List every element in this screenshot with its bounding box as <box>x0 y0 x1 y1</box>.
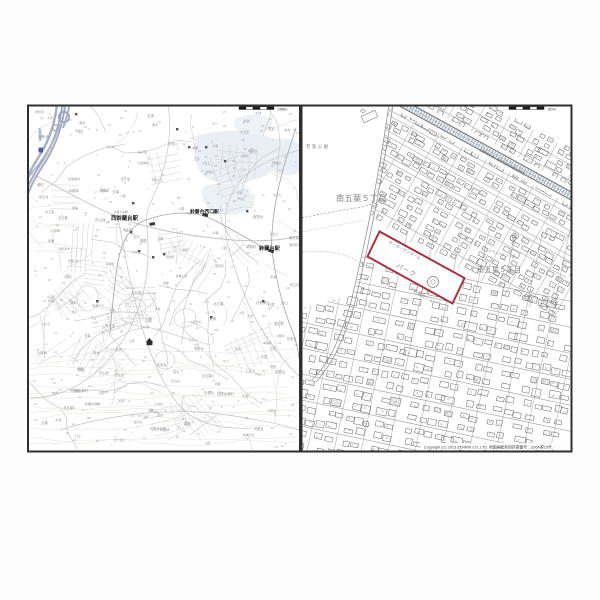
svg-text:鈴蘭: 鈴蘭 <box>213 231 219 235</box>
svg-text:北五葉3: 北五葉3 <box>131 290 143 295</box>
svg-text:白川台: 白川台 <box>42 322 50 326</box>
svg-text:唐櫃: 唐櫃 <box>184 421 191 426</box>
svg-text:小部峠: 小部峠 <box>160 427 170 432</box>
svg-text:桜の宮: 桜の宮 <box>134 420 143 424</box>
svg-text:中一: 中一 <box>177 195 183 200</box>
svg-text:鈴蘭台西口駅: 鈴蘭台西口駅 <box>190 208 219 215</box>
svg-text:杉尾神: 杉尾神 <box>155 402 163 406</box>
svg-text:大池: 大池 <box>55 417 61 422</box>
svg-text:高尾山: 高尾山 <box>189 338 197 342</box>
svg-text:幸陽: 幸陽 <box>72 205 78 210</box>
svg-text:緑町: 緑町 <box>37 182 44 187</box>
svg-text:杉尾神: 杉尾神 <box>69 188 79 193</box>
svg-text:五葉: 五葉 <box>157 236 164 241</box>
svg-text:会下: 会下 <box>72 310 78 314</box>
svg-text:大池: 大池 <box>255 110 261 115</box>
svg-text:甲栄: 甲栄 <box>155 307 161 311</box>
svg-text:西大池: 西大池 <box>39 134 49 139</box>
svg-text:鈴蘭公園: 鈴蘭公園 <box>176 274 187 278</box>
svg-text:鈴蘭台駅: 鈴蘭台駅 <box>259 244 281 252</box>
svg-text:泉台: 泉台 <box>93 350 100 355</box>
svg-text:水呑: 水呑 <box>68 258 74 263</box>
svg-text:花山台: 花山台 <box>171 378 180 383</box>
svg-text:友清: 友清 <box>147 113 154 118</box>
svg-text:山田: 山田 <box>270 345 276 350</box>
svg-text:大原: 大原 <box>129 339 135 343</box>
svg-text:小部峠: 小部峠 <box>240 154 249 158</box>
svg-text:5: 5 <box>512 237 514 241</box>
svg-text:北五葉: 北五葉 <box>213 301 224 306</box>
svg-text:大原: 大原 <box>132 249 138 254</box>
svg-text:鈴蘭台: 鈴蘭台 <box>106 262 115 266</box>
svg-text:北五葉: 北五葉 <box>58 215 68 220</box>
svg-text:小部: 小部 <box>221 245 227 250</box>
svg-text:南五葉５丁目: 南五葉５丁目 <box>336 193 387 203</box>
svg-text:ひよ: ひよ <box>75 433 81 438</box>
svg-text:緑町: 緑町 <box>183 247 189 252</box>
svg-text:君影: 君影 <box>268 126 275 131</box>
svg-text:西大池: 西大池 <box>107 145 115 149</box>
svg-text:松宮台: 松宮台 <box>157 362 167 367</box>
svg-text:菊水: 菊水 <box>235 346 241 351</box>
svg-text:君影町5: 君影町5 <box>289 242 300 247</box>
svg-text:上谷上: 上谷上 <box>280 300 289 305</box>
svg-text:五葉: 五葉 <box>84 333 91 338</box>
svg-text:西鈴蘭台駅: 西鈴蘭台駅 <box>111 214 139 222</box>
svg-text:高尾山: 高尾山 <box>275 369 286 374</box>
svg-text:菊水: 菊水 <box>109 307 115 312</box>
svg-text:妙賀山: 妙賀山 <box>168 141 178 146</box>
svg-text:若葉公園: 若葉公園 <box>306 143 330 150</box>
svg-text:杉尾神社: 杉尾神社 <box>68 176 80 181</box>
svg-text:君影町: 君影町 <box>193 320 202 324</box>
svg-text:西大池: 西大池 <box>105 323 116 328</box>
svg-text:幸陽町: 幸陽町 <box>263 340 272 345</box>
svg-text:北五葉3: 北五葉3 <box>63 405 75 410</box>
svg-text:北五葉: 北五葉 <box>240 129 249 134</box>
svg-text:杉尾: 杉尾 <box>261 354 267 359</box>
svg-text:鈴蘭: 鈴蘭 <box>74 388 80 393</box>
svg-text:君影町: 君影町 <box>35 109 44 114</box>
svg-text:白川: 白川 <box>154 410 160 414</box>
svg-text:五葉: 五葉 <box>112 189 119 194</box>
svg-text:友清: 友清 <box>133 234 140 239</box>
svg-text:花山台: 花山台 <box>273 193 281 197</box>
svg-text:小部: 小部 <box>242 393 249 398</box>
svg-text:君影: 君影 <box>270 364 277 369</box>
svg-text:大池: 大池 <box>247 313 253 318</box>
svg-text:有野台: 有野台 <box>253 214 264 219</box>
svg-text:桜の宮: 桜の宮 <box>138 149 147 154</box>
svg-text:50m: 50m <box>548 107 556 112</box>
svg-text:妙賀山: 妙賀山 <box>206 170 214 174</box>
svg-text:2: 2 <box>365 423 367 427</box>
svg-text:250m: 250m <box>278 107 289 112</box>
svg-text:友清: 友清 <box>115 347 122 352</box>
svg-text:西大: 西大 <box>173 369 179 374</box>
svg-text:水呑: 水呑 <box>48 298 55 303</box>
svg-text:五葉: 五葉 <box>194 157 200 161</box>
svg-text:唐櫃: 唐櫃 <box>163 281 169 285</box>
svg-text:花山台: 花山台 <box>99 370 110 375</box>
svg-text:から: から <box>223 358 229 363</box>
svg-text:山田: 山田 <box>205 441 211 445</box>
svg-text:杉尾神社: 杉尾神社 <box>138 160 150 165</box>
svg-text:北五葉3: 北五葉3 <box>202 373 214 378</box>
svg-text:西大池: 西大池 <box>39 194 48 199</box>
svg-text:唐櫃: 唐櫃 <box>192 145 198 150</box>
svg-text:筑紫が丘: 筑紫が丘 <box>92 303 104 308</box>
svg-text:君影町5: 君影町5 <box>59 246 70 251</box>
svg-text:菊水: 菊水 <box>79 120 86 125</box>
svg-text:北五葉: 北五葉 <box>45 209 54 214</box>
svg-text:小部峠: 小部峠 <box>50 228 61 233</box>
svg-text:筑紫が丘: 筑紫が丘 <box>243 432 255 437</box>
svg-text:鈴蘭: 鈴蘭 <box>215 382 221 386</box>
svg-text:鈴蘭: 鈴蘭 <box>77 366 83 371</box>
svg-text:水呑: 水呑 <box>270 274 277 279</box>
svg-text:南五葉: 南五葉 <box>289 235 300 240</box>
svg-text:松宮台: 松宮台 <box>270 232 278 236</box>
svg-text:水呑: 水呑 <box>213 144 219 148</box>
svg-text:小部: 小部 <box>143 324 149 329</box>
svg-text:南五葉５丁目: 南五葉５丁目 <box>477 265 521 274</box>
svg-text:筑紫が丘: 筑紫が丘 <box>152 178 163 182</box>
svg-text:唐櫃: 唐櫃 <box>48 238 54 243</box>
svg-text:小部: 小部 <box>120 193 126 198</box>
svg-text:鈴蘭台: 鈴蘭台 <box>254 426 264 431</box>
svg-text:Copyright (C) 2013 ZENRIN CO.,: Copyright (C) 2013 ZENRIN CO.,LTD. 地図画配利… <box>424 445 552 450</box>
svg-text:五葉: 五葉 <box>41 420 48 425</box>
svg-text:向井: 向井 <box>284 127 290 132</box>
svg-text:上谷上: 上谷上 <box>202 161 210 165</box>
svg-text:大原: 大原 <box>239 311 245 315</box>
svg-text:松宮台: 松宮台 <box>287 336 297 341</box>
svg-text:向井: 向井 <box>52 390 58 395</box>
svg-text:有野台: 有野台 <box>194 346 205 351</box>
svg-text:妙賀: 妙賀 <box>119 398 125 403</box>
svg-text:緑町: 緑町 <box>279 333 285 338</box>
svg-text:小部: 小部 <box>178 206 185 211</box>
